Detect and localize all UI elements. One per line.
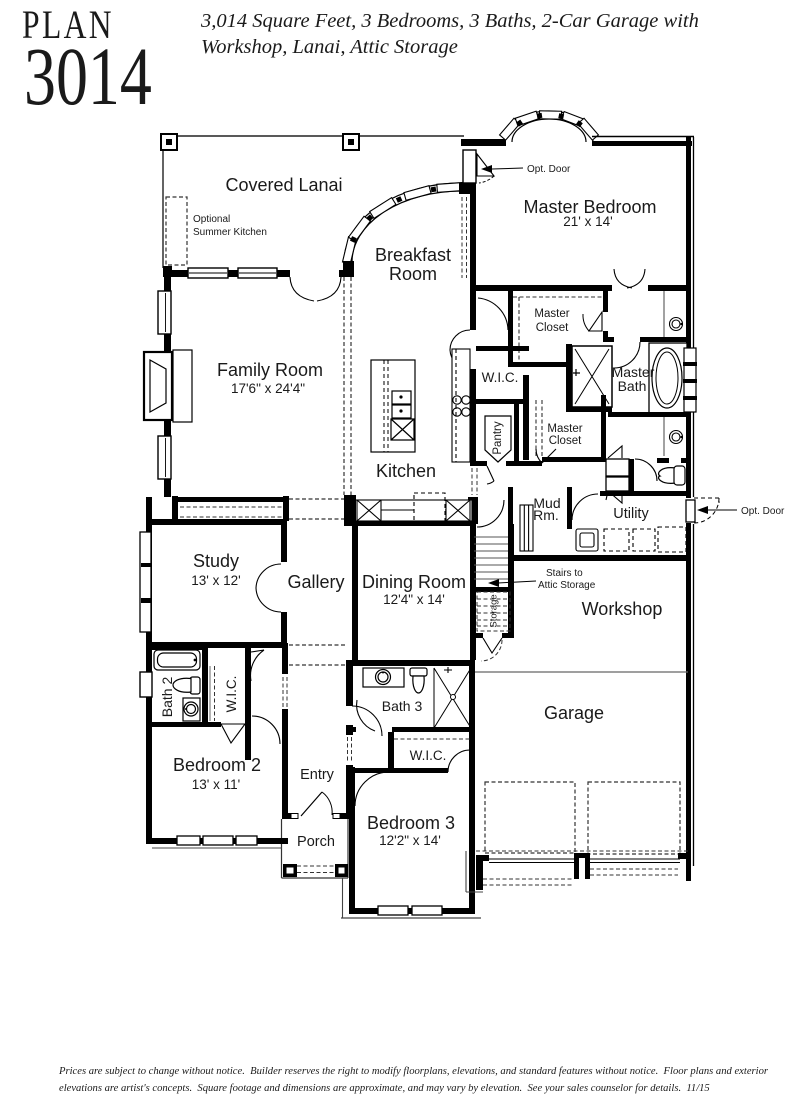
- svg-text:Storage: Storage: [489, 594, 500, 627]
- svg-text:Bath 2: Bath 2: [159, 677, 175, 718]
- svg-text:Master: Master: [534, 308, 569, 320]
- svg-text:12'4" x 14': 12'4" x 14': [383, 592, 445, 607]
- svg-text:Family Room: Family Room: [217, 360, 323, 380]
- svg-text:Rm.: Rm.: [533, 507, 559, 523]
- svg-text:21' x 14': 21' x 14': [563, 214, 612, 229]
- svg-text:Master: Master: [547, 423, 582, 435]
- svg-text:Bedroom 3: Bedroom 3: [367, 813, 455, 833]
- svg-text:Attic Storage: Attic Storage: [538, 580, 596, 591]
- svg-text:Opt. Door: Opt. Door: [741, 506, 785, 517]
- svg-text:17'6" x 24'4": 17'6" x 24'4": [231, 381, 305, 396]
- svg-text:Pantry: Pantry: [492, 421, 504, 454]
- svg-text:Kitchen: Kitchen: [376, 461, 436, 481]
- svg-text:Utility: Utility: [613, 506, 649, 522]
- svg-text:Breakfast: Breakfast: [375, 245, 451, 265]
- svg-text:13' x 12': 13' x 12': [191, 573, 240, 588]
- svg-text:Closet: Closet: [549, 435, 582, 447]
- svg-text:Summer Kitchen: Summer Kitchen: [193, 227, 267, 238]
- svg-text:Garage: Garage: [544, 703, 604, 723]
- svg-text:W.I.C.: W.I.C.: [482, 370, 519, 385]
- svg-text:Stairs to: Stairs to: [546, 568, 583, 579]
- svg-text:12'2" x 14': 12'2" x 14': [379, 833, 441, 848]
- svg-text:Workshop: Workshop: [582, 599, 663, 619]
- svg-text:Covered Lanai: Covered Lanai: [225, 175, 342, 195]
- svg-text:Porch: Porch: [297, 834, 335, 850]
- svg-text:13' x 11': 13' x 11': [192, 777, 240, 792]
- svg-text:Dining Room: Dining Room: [362, 572, 466, 592]
- svg-text:W.I.C.: W.I.C.: [224, 676, 239, 713]
- svg-text:Study: Study: [193, 551, 239, 571]
- svg-text:Bath 3: Bath 3: [382, 698, 423, 714]
- svg-text:Room: Room: [389, 264, 437, 284]
- svg-text:Gallery: Gallery: [287, 572, 344, 592]
- svg-text:Closet: Closet: [536, 322, 569, 334]
- svg-text:Entry: Entry: [300, 767, 335, 783]
- svg-text:W.I.C.: W.I.C.: [410, 748, 447, 763]
- svg-text:Bath: Bath: [618, 378, 647, 394]
- svg-text:Opt. Door: Opt. Door: [527, 164, 571, 175]
- svg-text:Optional: Optional: [193, 214, 230, 225]
- svg-text:Bedroom 2: Bedroom 2: [173, 755, 261, 775]
